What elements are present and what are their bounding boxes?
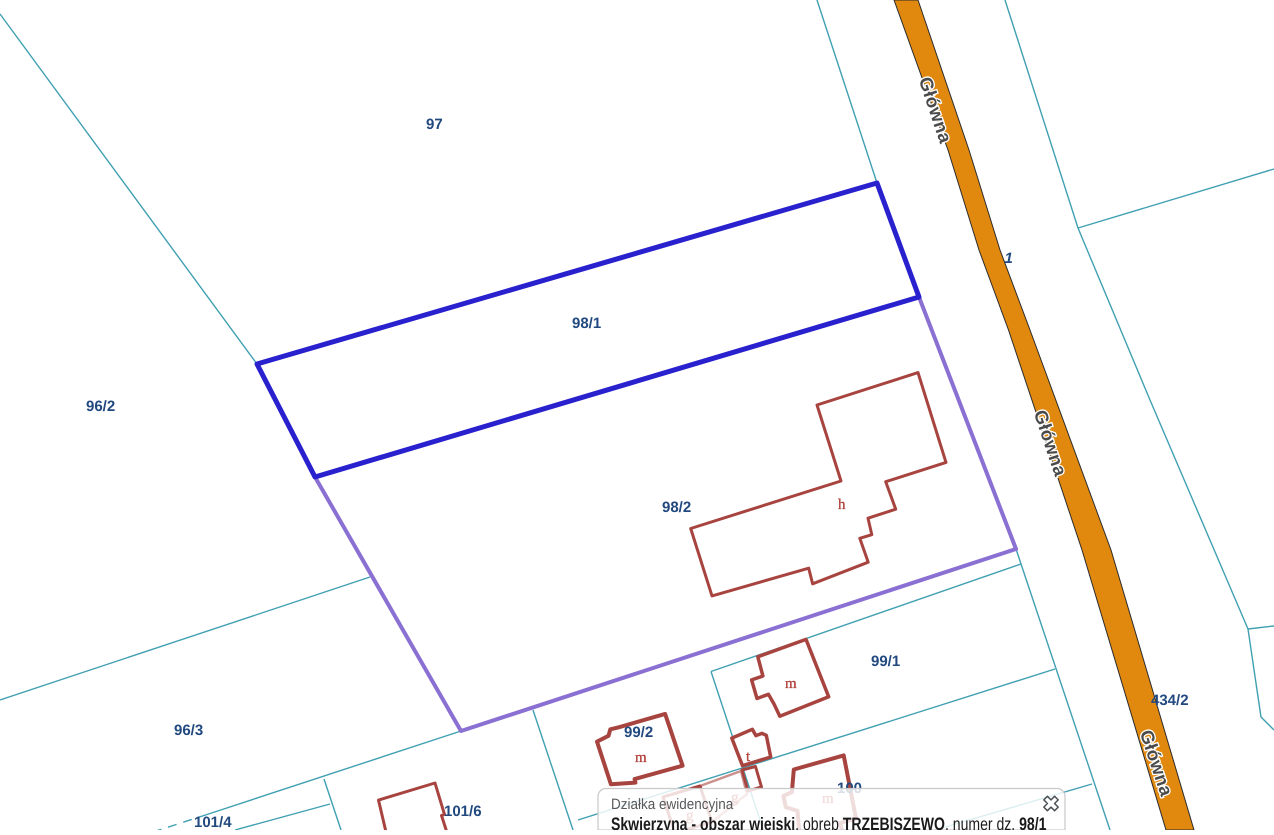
- svg-text:98/1: 98/1: [572, 315, 601, 332]
- svg-text:96/2: 96/2: [86, 398, 115, 415]
- svg-text:101/4: 101/4: [194, 814, 232, 830]
- svg-text:434/2: 434/2: [1151, 692, 1189, 709]
- svg-text:97: 97: [426, 116, 443, 133]
- svg-text:Skwierzyna - obszar wiejski, o: Skwierzyna - obszar wiejski, obreb TRZEB…: [611, 814, 1046, 830]
- svg-text:m: m: [785, 676, 797, 692]
- svg-text:99/1: 99/1: [871, 653, 900, 670]
- svg-text:m: m: [635, 750, 647, 766]
- svg-text:98/2: 98/2: [662, 499, 691, 516]
- svg-text:96/3: 96/3: [174, 722, 203, 739]
- svg-text:Działka ewidencyjna: Działka ewidencyjna: [611, 796, 734, 813]
- svg-text:101/6: 101/6: [444, 803, 482, 820]
- svg-text:h: h: [838, 497, 846, 513]
- svg-text:99/2: 99/2: [624, 724, 653, 741]
- svg-text:1: 1: [1005, 250, 1013, 267]
